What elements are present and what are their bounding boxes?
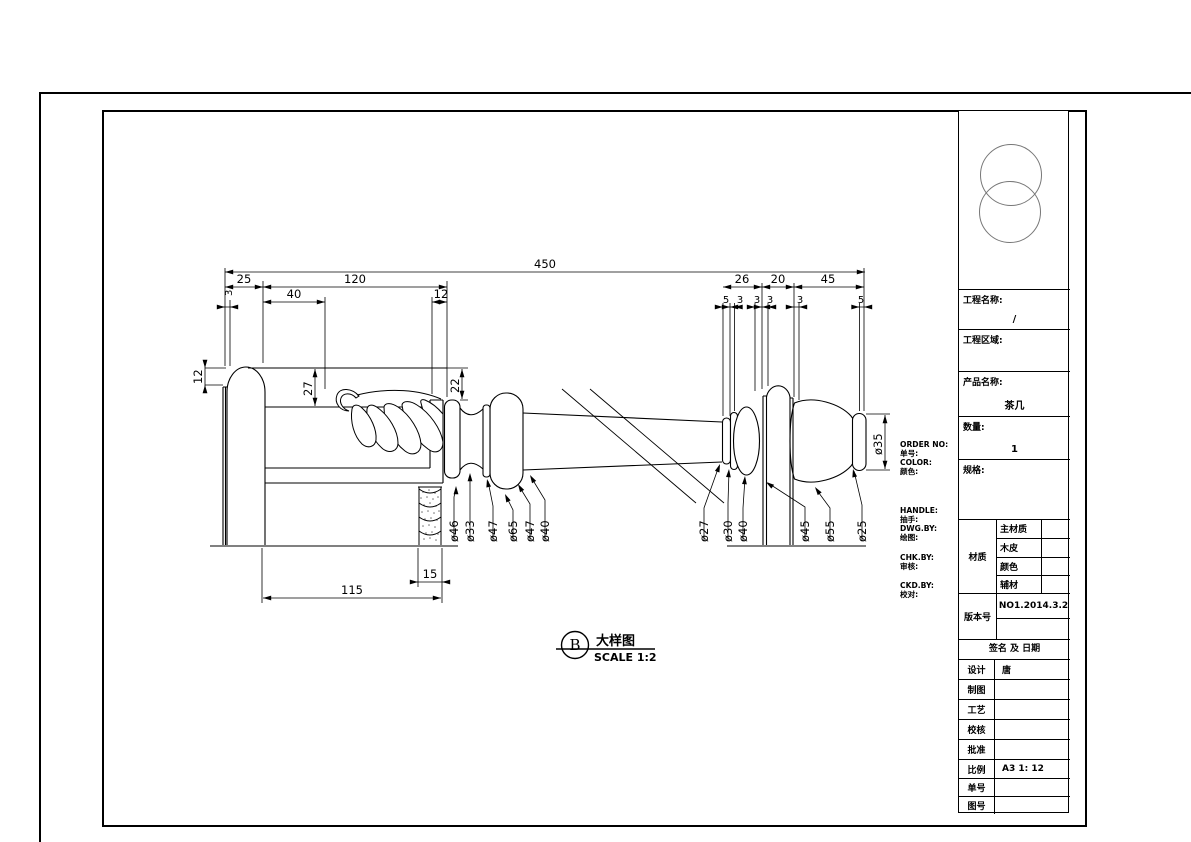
sign-row-value: A3 1: 12 bbox=[994, 760, 1070, 778]
dim-27: 27 bbox=[301, 381, 315, 396]
dim-26: 26 bbox=[735, 272, 750, 286]
callout-dia45: ø45 bbox=[798, 520, 812, 542]
material-row-value bbox=[1041, 558, 1070, 575]
sign-row-value bbox=[994, 797, 1070, 814]
version-value: NO1.2014.3.2 bbox=[996, 594, 1070, 618]
note-jiaodui: 校对: bbox=[900, 589, 918, 599]
material-row-label: 木皮 bbox=[997, 539, 1041, 557]
material-row-label: 辅材 bbox=[997, 576, 1041, 594]
project-name-value: / bbox=[959, 314, 1070, 325]
sign-row-approve: 批准 bbox=[959, 739, 1070, 759]
sign-row-label: 制图 bbox=[959, 680, 994, 699]
collar-27 bbox=[723, 418, 731, 464]
callout-dia27: ø27 bbox=[697, 520, 711, 542]
note-danhao: 单号: bbox=[900, 448, 918, 458]
material-row: 辅材 bbox=[996, 575, 1070, 594]
dim-45: 45 bbox=[821, 272, 836, 286]
dim-5a: 5 bbox=[723, 295, 729, 306]
version-label: 版本号 bbox=[959, 594, 996, 639]
sign-row-scale: 比例 A3 1: 12 bbox=[959, 759, 1070, 778]
bulb-65 bbox=[490, 393, 523, 489]
break-lines bbox=[562, 389, 724, 503]
sign-row-label: 校核 bbox=[959, 720, 994, 739]
quantity-value: 1 bbox=[959, 444, 1070, 455]
dim-25: 25 bbox=[237, 272, 252, 286]
detail-title: 大样图 bbox=[596, 633, 635, 649]
diameter-callouts: ø46 ø33 ø47 ø65 ø47 ø40 ø27 ø30 ø40 ø45 … bbox=[447, 520, 869, 542]
material-label: 材质 bbox=[959, 520, 996, 593]
callout-dia47b: ø47 bbox=[523, 520, 537, 542]
sign-row-label: 批准 bbox=[959, 740, 994, 759]
signature-header: 签名 及 日期 bbox=[959, 639, 1070, 659]
material-section: 材质 主材质 木皮 颜色 辅材 bbox=[959, 519, 1070, 593]
note-huitu: 绘图: bbox=[900, 532, 918, 542]
product-name-value: 茶几 bbox=[959, 397, 1070, 412]
right-post bbox=[767, 386, 791, 545]
detail-scale: SCALE 1:2 bbox=[594, 651, 657, 664]
callout-dia25: ø25 bbox=[855, 520, 869, 542]
spec-label: 规格: bbox=[963, 463, 985, 476]
end-lens-35 bbox=[853, 414, 867, 471]
material-row-label: 颜色 bbox=[997, 558, 1041, 575]
callout-dia65: ø65 bbox=[506, 520, 520, 542]
note-order-no: ORDER NO: bbox=[900, 440, 948, 449]
vase-55 bbox=[790, 400, 857, 482]
dim-40: 40 bbox=[287, 287, 302, 301]
note-dwg-by: DWG.BY: bbox=[900, 524, 937, 533]
oval-40 bbox=[734, 407, 760, 475]
version-empty-row bbox=[996, 618, 1070, 640]
dim-dia35: ø35 bbox=[871, 433, 885, 455]
quantity-label: 数量: bbox=[963, 420, 985, 433]
neck-33 bbox=[460, 408, 483, 470]
material-row: 颜色 bbox=[996, 557, 1070, 575]
callout-dia40r: ø40 bbox=[736, 520, 750, 542]
note-shenhe: 审核: bbox=[900, 561, 918, 571]
taper bbox=[523, 413, 722, 470]
note-choushou: 抽手: bbox=[900, 514, 918, 524]
project-area-cell: 工程区域: bbox=[959, 329, 1070, 371]
material-row: 木皮 bbox=[996, 538, 1070, 557]
dim-22: 22 bbox=[448, 378, 462, 393]
material-row-label: 主材质 bbox=[997, 520, 1041, 538]
collar-46 bbox=[445, 400, 461, 478]
note-color: COLOR: bbox=[900, 458, 932, 467]
dim-120: 120 bbox=[344, 272, 366, 286]
sign-row-value bbox=[994, 680, 1070, 699]
material-row-value bbox=[1041, 539, 1070, 557]
left-post-laminate bbox=[223, 387, 227, 545]
acanthus-leaf bbox=[336, 389, 443, 453]
dimension-lines bbox=[205, 268, 890, 603]
dim-12-top: 12 bbox=[434, 287, 449, 301]
project-area-label: 工程区域: bbox=[963, 333, 1003, 346]
dim-20: 20 bbox=[771, 272, 786, 286]
dim-3c: 3 bbox=[767, 295, 773, 306]
sign-row-value bbox=[994, 740, 1070, 759]
product-name-cell: 产品名称: 茶几 bbox=[959, 371, 1070, 416]
ring-47 bbox=[483, 405, 490, 477]
sign-row-value: 唐 bbox=[994, 660, 1070, 679]
note-ckd-by: CKD.BY: bbox=[900, 581, 934, 590]
dim-overall: 450 bbox=[534, 257, 556, 271]
callout-dia55: ø55 bbox=[823, 520, 837, 542]
sign-row-value bbox=[994, 700, 1070, 719]
rope-column bbox=[418, 487, 442, 545]
callout-dia30: ø30 bbox=[721, 520, 735, 542]
version-section: 版本号 NO1.2014.3.2 bbox=[959, 593, 1070, 639]
callout-dia40: ø40 bbox=[538, 520, 552, 542]
dim-115: 115 bbox=[341, 583, 363, 597]
dim-3-left: 3 bbox=[224, 290, 235, 296]
sign-row-check: 校核 bbox=[959, 719, 1070, 739]
project-name-label: 工程名称: bbox=[963, 293, 1003, 306]
quantity-cell: 数量: 1 bbox=[959, 416, 1070, 459]
sign-row-label: 比例 bbox=[959, 760, 994, 778]
callout-dia46: ø46 bbox=[447, 520, 461, 542]
dim-3b: 3 bbox=[754, 295, 760, 306]
sign-row-label: 单号 bbox=[959, 779, 994, 796]
note-block: ORDER NO: 单号: COLOR: 颜色: HANDLE: 抽手: DWG… bbox=[900, 440, 948, 599]
left-post bbox=[227, 367, 265, 545]
drawing-sheet: 450 25 120 40 12 26 20 45 5 3 3 3 3 5 3 … bbox=[0, 0, 1191, 842]
title-block: 工程名称: / 工程区域: 产品名称: 茶几 数量: 1 规格: 材质 主材质 … bbox=[958, 110, 1069, 813]
sign-row-order: 单号 bbox=[959, 778, 1070, 796]
dim-5b: 5 bbox=[858, 295, 864, 306]
signature-header-label: 签名 及 日期 bbox=[989, 644, 1040, 654]
sign-row-label: 工艺 bbox=[959, 700, 994, 719]
detail-letter: B bbox=[569, 636, 580, 654]
spec-cell: 规格: bbox=[959, 459, 1070, 519]
dim-3d: 3 bbox=[797, 295, 803, 306]
detail-marker: B 大样图 SCALE 1:2 bbox=[556, 632, 657, 665]
sign-row-value bbox=[994, 779, 1070, 796]
sign-row-label: 图号 bbox=[959, 797, 994, 814]
sign-row-value bbox=[994, 720, 1070, 739]
note-handle: HANDLE: bbox=[900, 506, 938, 515]
dim-3a: 3 bbox=[737, 295, 743, 306]
material-row: 主材质 bbox=[996, 520, 1070, 538]
note-chk-by: CHK.BY: bbox=[900, 553, 934, 562]
dim-12-left: 12 bbox=[191, 369, 205, 384]
logo-circle-bottom bbox=[979, 181, 1041, 243]
callout-dia33: ø33 bbox=[463, 520, 477, 542]
callout-dia47a: ø47 bbox=[486, 520, 500, 542]
sign-row-draft: 制图 bbox=[959, 679, 1070, 699]
right-post-sleeve bbox=[763, 396, 793, 545]
sign-row-design: 设计 唐 bbox=[959, 659, 1070, 679]
material-row-value bbox=[1041, 576, 1070, 594]
arrowheads bbox=[203, 270, 888, 601]
material-row-value bbox=[1041, 520, 1070, 538]
project-name-cell: 工程名称: / bbox=[959, 289, 1070, 329]
note-yanse: 颜色: bbox=[900, 466, 918, 476]
product-name-label: 产品名称: bbox=[963, 375, 1003, 388]
sign-row-drawing-no: 图号 bbox=[959, 796, 1070, 814]
sign-row-craft: 工艺 bbox=[959, 699, 1070, 719]
dim-15: 15 bbox=[423, 567, 438, 581]
sign-row-label: 设计 bbox=[959, 660, 994, 679]
